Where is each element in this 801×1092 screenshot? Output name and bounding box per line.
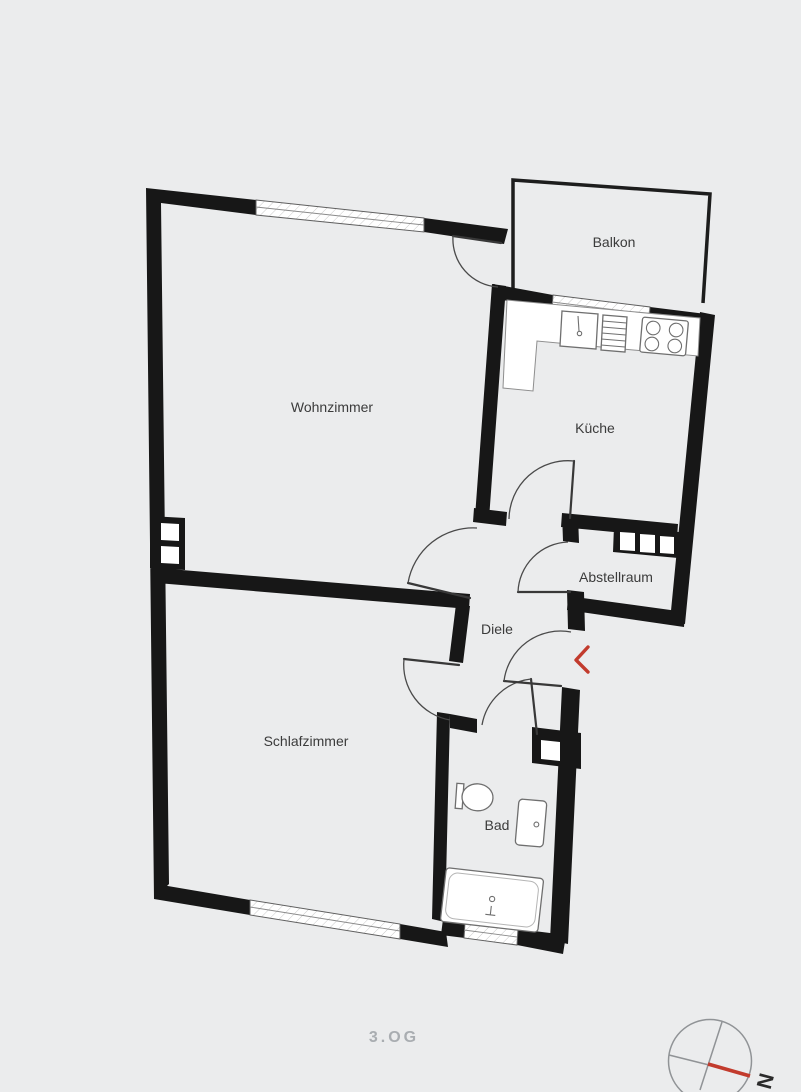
room-label-bad: Bad [485,817,510,833]
window-schlafzimmer-icon [250,900,400,939]
bathtub-icon [440,868,543,933]
bath-sink-icon [515,799,547,847]
door-schlafzimmer-icon [404,659,459,720]
door-kueche-icon [509,461,574,519]
stove-icon [640,317,689,356]
entrance-chevron-icon [576,647,588,672]
bath-niche [541,740,560,761]
floor-label: 3.OG [369,1029,419,1046]
floor-plan-page: Wohnzimmer Balkon Küche Abstellraum Diel… [0,0,801,1092]
door-entrance-icon [504,631,571,686]
bathroom-fixtures [440,782,547,932]
room-label-balkon: Balkon [593,234,636,250]
room-label-wohnzimmer: Wohnzimmer [291,399,374,415]
door-wohnzimmer-icon [408,528,477,598]
door-bad-icon [482,679,537,734]
room-label-kueche: Küche [575,420,615,436]
compass-icon: N [669,1020,778,1092]
door-abstellraum-icon [518,542,570,592]
compass-north-needle-icon [708,1064,750,1076]
room-label-diele: Diele [481,621,513,637]
door-balkon-icon [453,236,501,287]
compass-north-label: N [751,1071,777,1092]
room-label-abstellraum: Abstellraum [579,569,653,585]
room-label-schlafzimmer: Schlafzimmer [264,733,349,749]
floor-plan-drawing: Wohnzimmer Balkon Küche Abstellraum Diel… [0,0,801,1092]
toilet-icon [455,782,494,812]
